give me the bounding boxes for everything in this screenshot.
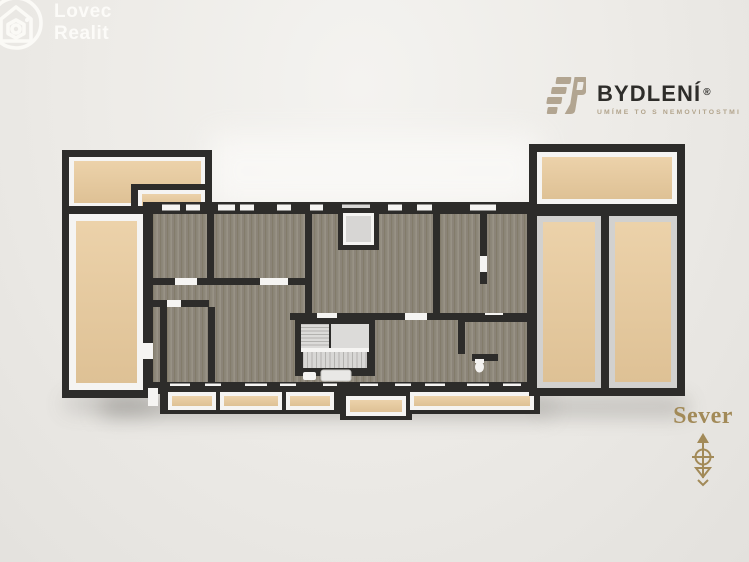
bathtub bbox=[321, 370, 351, 381]
terrace-floor bbox=[543, 222, 595, 382]
balcony-floor bbox=[350, 400, 402, 412]
terrace-floor bbox=[542, 157, 672, 199]
door-opening bbox=[175, 278, 197, 285]
stair-flight-lower bbox=[303, 352, 367, 368]
main-building bbox=[143, 202, 537, 406]
right-terrace-block bbox=[529, 144, 685, 396]
north-arrow-icon bbox=[686, 432, 720, 488]
door-opening bbox=[260, 278, 288, 285]
balcony-floor bbox=[414, 396, 530, 406]
balcony-floor bbox=[172, 396, 212, 406]
staircase bbox=[295, 318, 375, 376]
toilet bbox=[475, 362, 484, 373]
door-opening bbox=[480, 256, 487, 272]
sink bbox=[303, 372, 316, 380]
terrace-floor bbox=[615, 222, 671, 382]
door-opening bbox=[167, 300, 181, 307]
north-indicator: Sever bbox=[659, 403, 747, 493]
bydleni-tagline: UMÍME TO S NEMOVITOSTMI bbox=[597, 109, 741, 116]
screenshot-canvas: Lovec Realit BYDLENÍ® UMÍME TO S NEMOVIT… bbox=[0, 0, 749, 562]
bydleni-wordmark: BYDLENÍ® bbox=[597, 81, 741, 106]
bydleni-monogram-icon bbox=[540, 74, 586, 121]
lovec-line2: Realit bbox=[54, 23, 112, 45]
stair-landing bbox=[331, 324, 369, 348]
lovec-line1: Lovec bbox=[54, 1, 112, 23]
lovec-house-camera-icon bbox=[0, 0, 48, 53]
lovec-realit-logo: Lovec Realit bbox=[0, 0, 190, 64]
registered-mark: ® bbox=[703, 87, 711, 98]
lovec-realit-wordmark: Lovec Realit bbox=[54, 1, 112, 45]
door-opening bbox=[405, 313, 427, 320]
bydleni-text: BYDLENÍ® UMÍME TO S NEMOVITOSTMI bbox=[597, 74, 741, 116]
stair-flight-upper bbox=[301, 324, 329, 348]
balcony-floor bbox=[224, 396, 278, 406]
elevator bbox=[338, 208, 379, 250]
floor-plan bbox=[55, 138, 687, 430]
terrace-floor bbox=[76, 221, 137, 383]
balcony-row bbox=[160, 386, 540, 420]
wall-cap bbox=[148, 388, 158, 406]
terrace-door-opening bbox=[143, 343, 153, 359]
north-label: Sever bbox=[659, 403, 747, 430]
bydleni-logo: BYDLENÍ® UMÍME TO S NEMOVITOSTMI bbox=[540, 74, 741, 121]
balcony-floor bbox=[290, 396, 330, 406]
